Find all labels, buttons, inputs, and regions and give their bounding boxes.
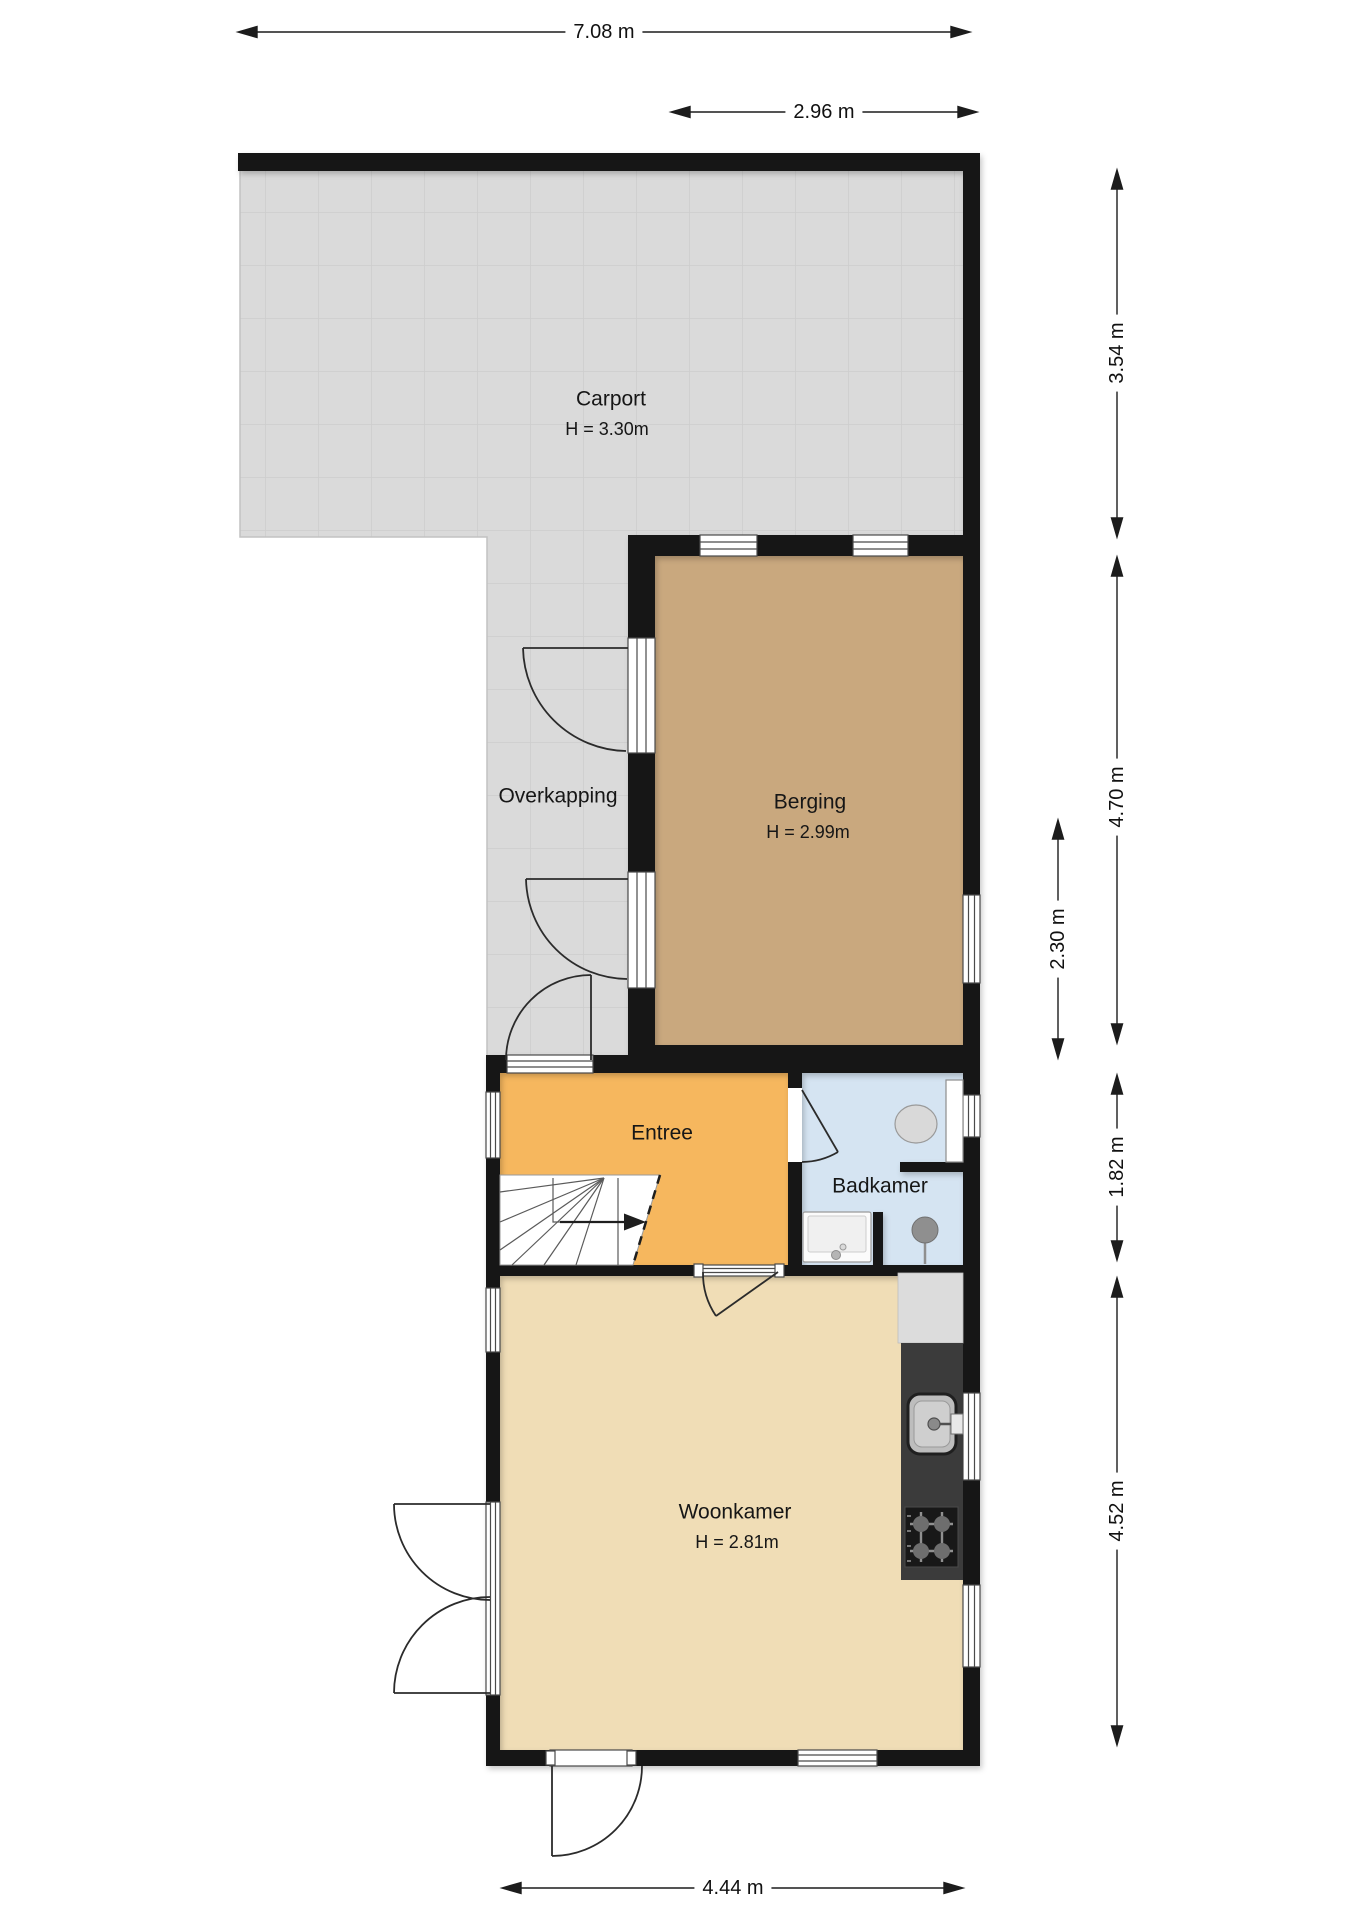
staircase-icon — [500, 1175, 660, 1265]
floor-plan-drawing — [0, 0, 1358, 1920]
room-label-overkapping: Overkapping — [498, 784, 617, 807]
kitchen-sink-icon — [908, 1394, 963, 1454]
door-opening — [628, 872, 655, 988]
dim-label-woonkamer-width: 4.44 m — [694, 1876, 771, 1900]
wall-badkamer-stub-v — [873, 1212, 883, 1265]
door-opening — [546, 1750, 636, 1766]
window-icon — [700, 535, 757, 556]
room-label-berging: Berging — [774, 790, 846, 813]
door-opening — [788, 1088, 802, 1162]
room-label-badkamer: Badkamer — [832, 1174, 928, 1197]
dim-label-berging-segment: 2.30 m — [1046, 900, 1070, 977]
door-arc — [552, 1766, 642, 1856]
window-icon — [963, 1393, 980, 1480]
wall-berging-bottom — [628, 1045, 980, 1073]
dim-label-carport-depth: 3.54 m — [1105, 314, 1129, 391]
door-opening — [628, 638, 655, 753]
french-door-opening — [486, 1502, 500, 1695]
room-height-berging: H = 2.99m — [766, 823, 850, 843]
window-icon — [963, 895, 980, 983]
wall-top — [238, 153, 980, 171]
room-label-carport: Carport — [576, 387, 646, 410]
french-door-arcs — [394, 1504, 490, 1693]
room-height-carport: H = 3.30m — [565, 420, 649, 440]
room-height-woonkamer: H = 2.81m — [695, 1533, 779, 1553]
window-icon — [486, 1092, 500, 1158]
window-icon — [486, 1288, 500, 1352]
room-label-woonkamer: Woonkamer — [679, 1500, 792, 1523]
door-opening — [507, 1055, 593, 1073]
window-icon — [963, 1095, 980, 1137]
dim-label-total-width: 7.08 m — [565, 20, 642, 44]
wall-berging-left — [628, 535, 655, 1073]
window-icon — [853, 535, 908, 556]
door-opening — [694, 1264, 784, 1277]
carport-floor — [240, 171, 963, 537]
dim-label-woonkamer-depth: 4.52 m — [1105, 1472, 1129, 1549]
wall-badkamer-stub-h — [900, 1162, 963, 1172]
window-icon — [963, 1585, 980, 1667]
floor-plan-page: Carport H = 3.30m Overkapping Berging H … — [0, 0, 1358, 1920]
dim-label-berging-depth: 4.70 m — [1105, 758, 1129, 835]
room-label-entree: Entree — [631, 1121, 693, 1144]
dim-label-berging-width: 2.96 m — [785, 100, 862, 124]
wall-berging-top — [628, 535, 963, 556]
washbasin-icon — [803, 1212, 871, 1262]
window-icon — [798, 1750, 877, 1766]
dim-label-entree-depth: 1.82 m — [1105, 1128, 1129, 1205]
gas-hob-icon — [905, 1507, 958, 1567]
